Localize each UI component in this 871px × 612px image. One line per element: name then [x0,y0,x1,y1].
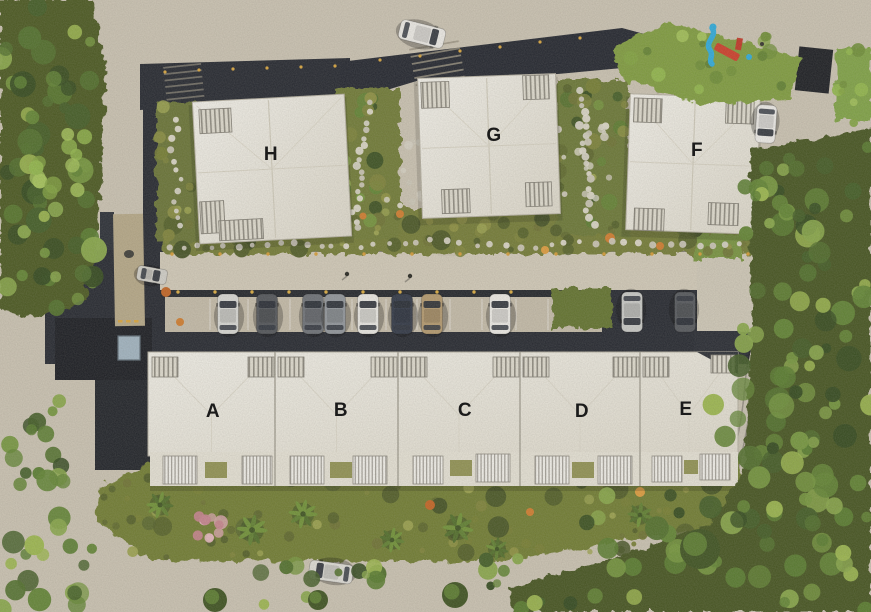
building-label-B: B [334,400,348,422]
building-label-F: F [691,140,703,162]
building-label-C: C [458,400,472,422]
building-label-H: H [264,144,278,166]
building-label-A: A [206,401,220,423]
building-label-G: G [486,125,501,147]
photo-grain-light [0,0,871,612]
site-plan-stage: A B C D E F G H [0,0,871,612]
building-label-D: D [575,401,589,423]
building-label-E: E [679,399,692,421]
site-plan-render [0,0,871,612]
